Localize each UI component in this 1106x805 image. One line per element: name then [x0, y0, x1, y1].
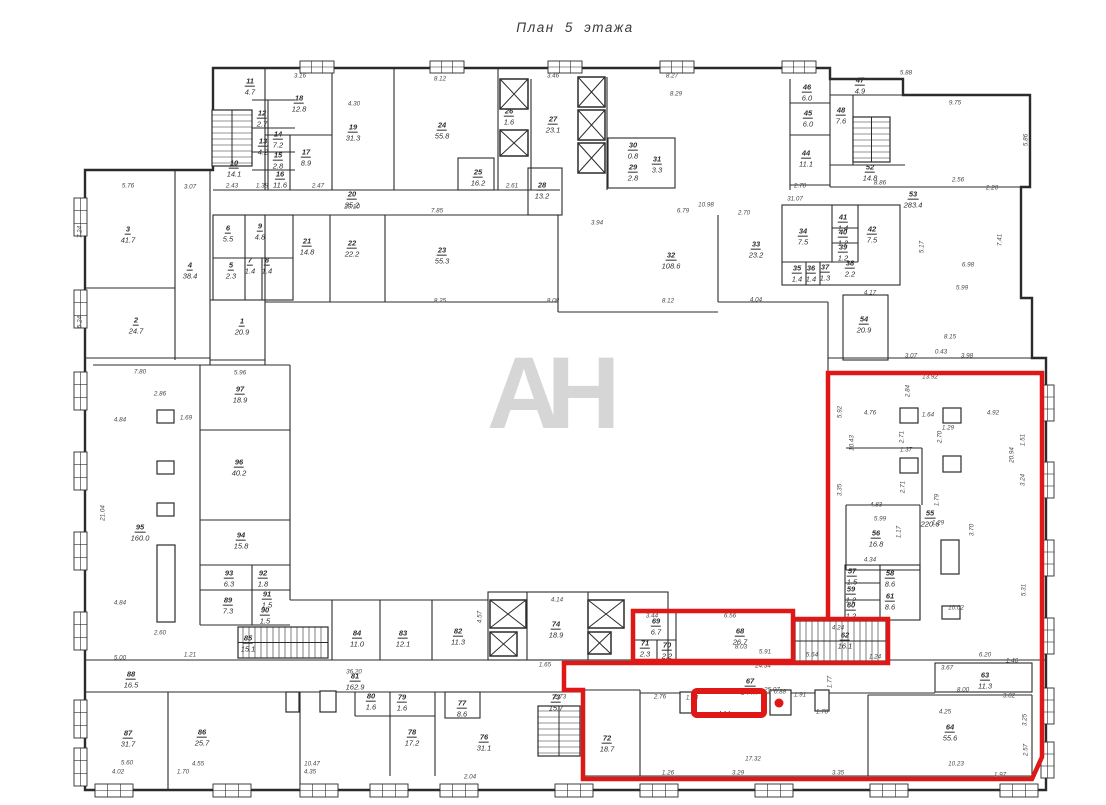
highlight-small-rect [694, 691, 764, 715]
highlight-dot [775, 699, 784, 708]
floorplan-canvas: План 5 этажа АН 120.9224.7341.7438.452.3… [0, 0, 1106, 805]
highlight-overlay [0, 0, 1106, 805]
highlight-region-main [564, 373, 1042, 779]
highlight-region-rooms [633, 611, 793, 661]
